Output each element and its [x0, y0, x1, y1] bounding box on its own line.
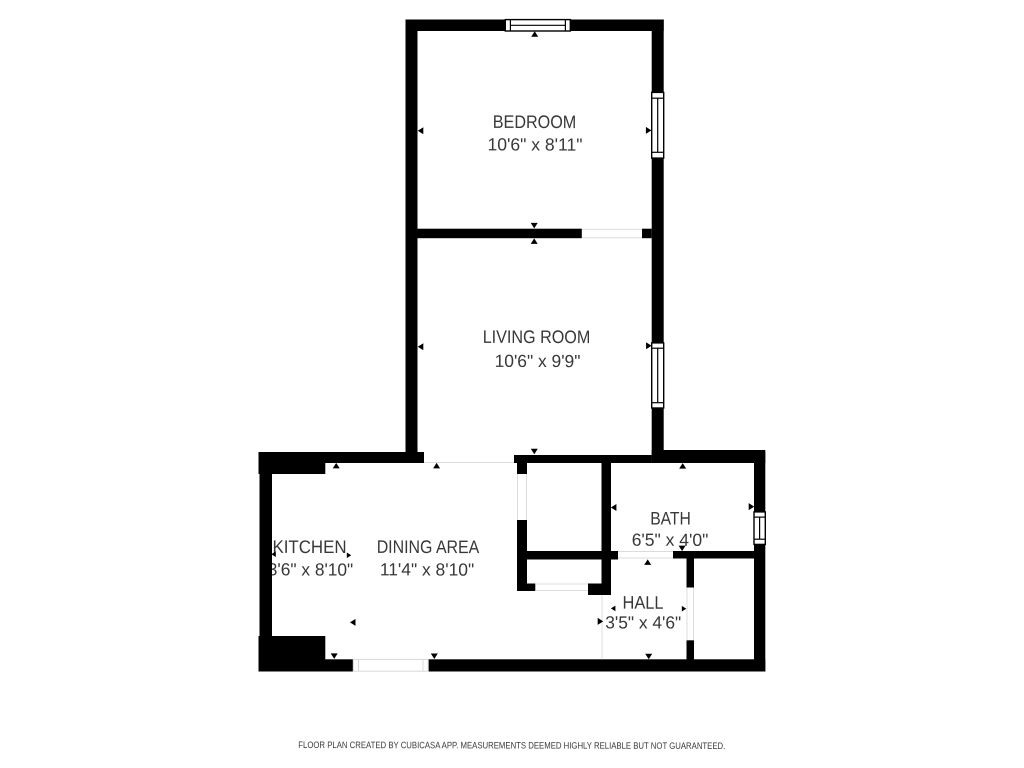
svg-text:HALL: HALL	[622, 593, 663, 613]
svg-text:FLOOR PLAN CREATED BY CUBICASA: FLOOR PLAN CREATED BY CUBICASA APP. MEAS…	[298, 740, 725, 752]
svg-text:DINING AREA: DINING AREA	[377, 537, 480, 557]
svg-text:10'6" x 9'9": 10'6" x 9'9"	[495, 351, 581, 371]
svg-text:6'5" x 4'0": 6'5" x 4'0"	[632, 530, 709, 550]
svg-text:BEDROOM: BEDROOM	[493, 112, 576, 132]
svg-text:KITCHEN: KITCHEN	[272, 537, 346, 557]
svg-text:11'4" x 8'10": 11'4" x 8'10"	[380, 559, 474, 579]
svg-text:10'6" x 8'11": 10'6" x 8'11"	[487, 134, 582, 154]
svg-text:3'5" x 4'6": 3'5" x 4'6"	[605, 612, 681, 632]
svg-text:3'6" x 8'10": 3'6" x 8'10"	[268, 559, 353, 579]
svg-text:BATH: BATH	[650, 508, 691, 528]
svg-text:LIVING ROOM: LIVING ROOM	[483, 327, 591, 347]
